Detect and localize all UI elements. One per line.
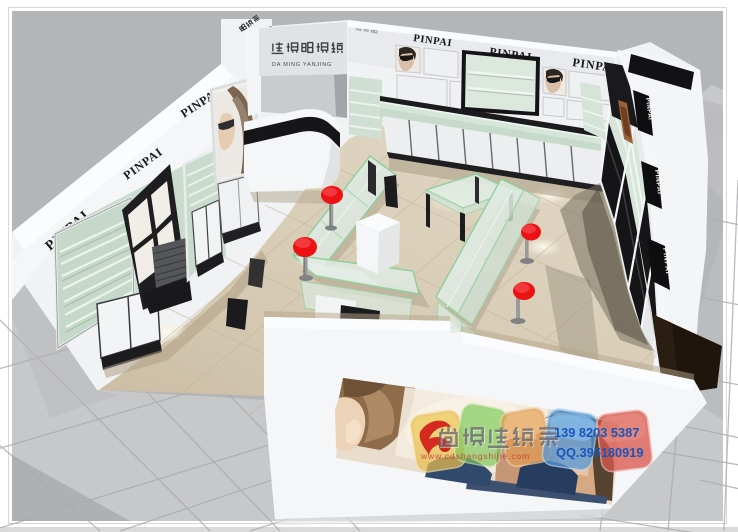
svg-text:QQ.395180919: QQ.395180919	[556, 445, 644, 460]
svg-text:www.cdshangshijie.com: www.cdshangshijie.com	[420, 451, 530, 461]
svg-text:DA MING YANJING: DA MING YANJING	[272, 62, 332, 68]
svg-text:139 8203 5387: 139 8203 5387	[554, 425, 639, 440]
